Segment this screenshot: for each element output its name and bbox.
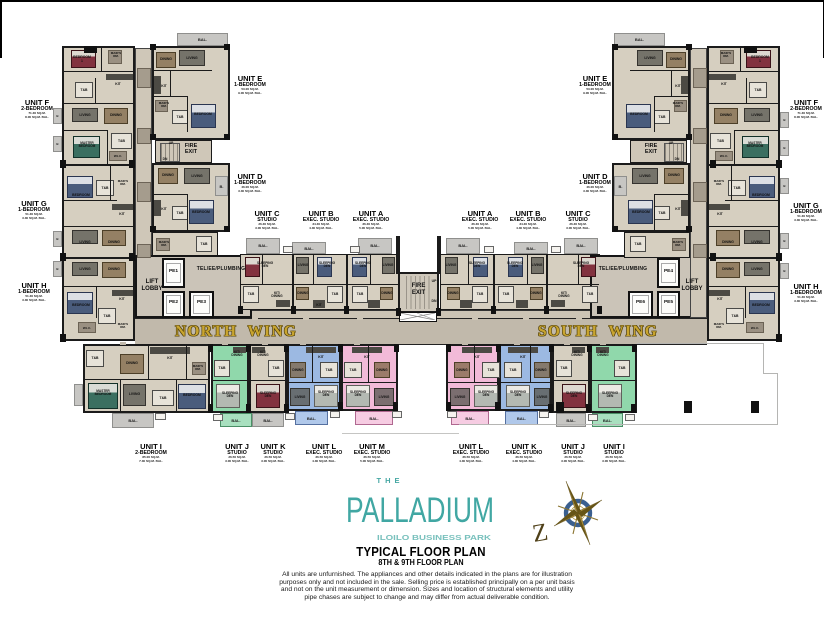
svg-text:PALLADIUM: PALLADIUM <box>346 491 494 526</box>
svg-text:ILOILO BUSINESS PARK: ILOILO BUSINESS PARK <box>377 535 491 542</box>
svg-text:Z: Z <box>530 519 550 548</box>
